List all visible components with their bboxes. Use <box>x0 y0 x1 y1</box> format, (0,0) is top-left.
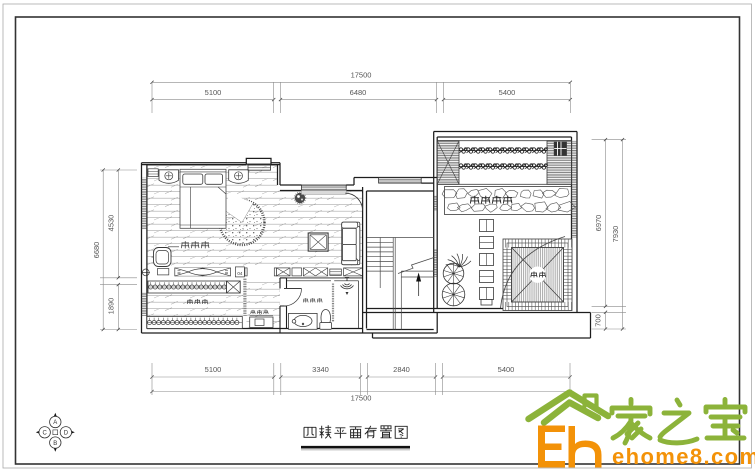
svg-text:1890: 1890 <box>107 298 116 315</box>
svg-text:04: 04 <box>237 271 243 276</box>
svg-text:D: D <box>64 431 69 437</box>
svg-text:ehome8.com: ehome8.com <box>612 444 755 469</box>
svg-text:B: B <box>53 441 57 447</box>
svg-text:6970: 6970 <box>594 215 603 232</box>
svg-text:5400: 5400 <box>499 88 516 97</box>
svg-text:7930: 7930 <box>611 226 620 243</box>
svg-text:6680: 6680 <box>92 242 101 259</box>
svg-text:4530: 4530 <box>107 215 116 232</box>
svg-text:C: C <box>43 431 48 437</box>
svg-text:2840: 2840 <box>393 365 410 374</box>
svg-text:17500: 17500 <box>351 71 372 80</box>
svg-text:A: A <box>53 420 57 426</box>
svg-text:5400: 5400 <box>498 365 515 374</box>
svg-text:17500: 17500 <box>351 394 372 403</box>
svg-text:6480: 6480 <box>350 88 367 97</box>
svg-text:700: 700 <box>594 314 603 327</box>
svg-text:5100: 5100 <box>205 88 222 97</box>
svg-text:3340: 3340 <box>312 365 329 374</box>
svg-text:5100: 5100 <box>205 365 222 374</box>
